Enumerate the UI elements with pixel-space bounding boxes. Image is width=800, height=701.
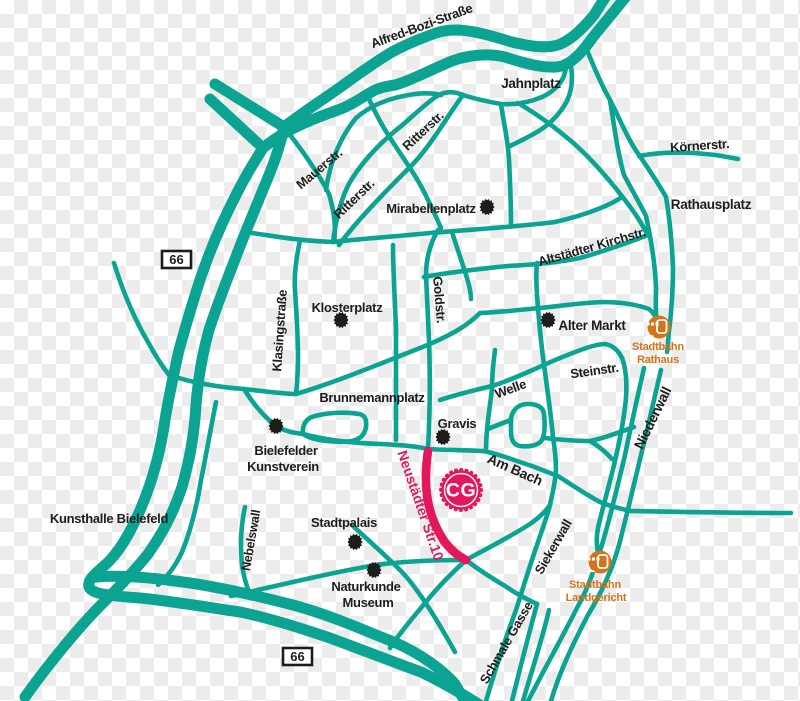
svg-text:Museum: Museum	[343, 595, 394, 610]
svg-text:Kunsthalle Bielefeld: Kunsthalle Bielefeld	[50, 511, 169, 526]
svg-text:Rathausplatz: Rathausplatz	[671, 197, 752, 212]
svg-text:Brunnemannplatz: Brunnemannplatz	[319, 390, 425, 405]
svg-text:Gravis: Gravis	[438, 416, 477, 431]
svg-text:Naturkunde: Naturkunde	[331, 579, 400, 594]
svg-text:Mirabellenplatz: Mirabellenplatz	[386, 201, 476, 216]
svg-text:66: 66	[290, 649, 304, 664]
svg-text:Alter Markt: Alter Markt	[558, 318, 626, 333]
svg-text:Stadtbahn: Stadtbahn	[632, 341, 684, 353]
svg-text:Bielefelder: Bielefelder	[254, 443, 317, 458]
svg-text:Stadtpalais: Stadtpalais	[311, 515, 377, 530]
svg-text:CG: CG	[446, 480, 476, 502]
svg-text:Landgericht: Landgericht	[566, 592, 627, 604]
svg-text:Stadtbahn: Stadtbahn	[569, 579, 621, 591]
svg-text:Kunstverein: Kunstverein	[247, 459, 319, 474]
svg-text:Jahnplatz: Jahnplatz	[501, 76, 561, 91]
svg-text:66: 66	[169, 252, 183, 267]
svg-text:Klosterplatz: Klosterplatz	[312, 300, 384, 315]
svg-text:Rathaus: Rathaus	[637, 354, 679, 366]
